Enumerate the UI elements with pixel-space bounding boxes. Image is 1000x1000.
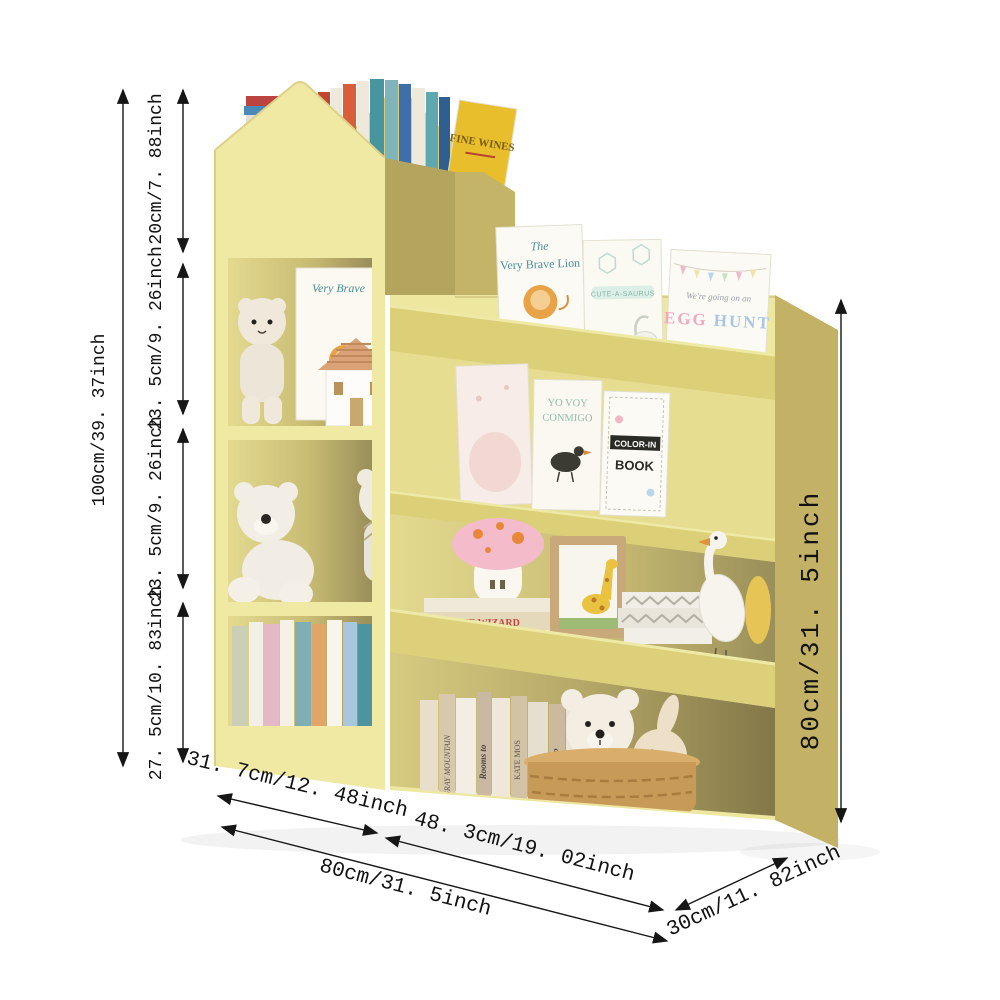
spine-text: GRAY MOUNTAIN [443, 734, 452, 797]
book-spine [312, 624, 326, 726]
giraffe-picture-frame [550, 536, 626, 638]
book-spine [358, 624, 372, 726]
bear-leg [242, 396, 260, 424]
giraffe-spot [605, 578, 609, 582]
book-spine [232, 626, 248, 726]
dim-label-middle-shelf: 23. 5cm/9. 26inch [147, 416, 167, 600]
banner-text: CUTE-A-SAURUS [591, 290, 655, 298]
book-spine [456, 698, 476, 818]
dim-label-total-height: 100cm/39. 37inch [90, 334, 110, 507]
giraffe-spot [600, 606, 605, 611]
bear-body [240, 344, 284, 402]
grass [559, 618, 617, 629]
bookshelf-illustration: FINE WINES Very Brave [0, 0, 1000, 1000]
book-spine [249, 622, 263, 726]
book-title-line2: Very Brave Lion [500, 256, 580, 273]
bear-nose [261, 514, 271, 524]
book-spine-horizontal [624, 628, 712, 644]
book-spine [280, 620, 294, 726]
book-title-line1: The [530, 239, 549, 254]
book-spine [295, 622, 311, 726]
cubby-3-books [232, 620, 372, 726]
cap-dot [473, 529, 483, 539]
house-window [334, 382, 343, 395]
dim-label-total-width: 80cm/31. 5inch [317, 855, 494, 921]
bear-eye [268, 320, 273, 325]
house-door [350, 398, 363, 426]
cap-dot [485, 547, 491, 553]
book-spine [492, 698, 510, 818]
cap-dot [496, 522, 504, 530]
book-spine [327, 620, 342, 726]
goose-head [709, 531, 727, 549]
bear-nose [596, 730, 605, 739]
tower-side-panel [385, 158, 455, 295]
cap-dot [512, 532, 524, 544]
dim-label-right-height: 80cm/31. 5inch [796, 490, 826, 750]
book-title: Very Brave [312, 281, 366, 295]
book-color-in: COLOR-IN BOOK [600, 391, 670, 517]
book-spine-horizontal [424, 598, 552, 612]
product-dimension-image: FINE WINES Very Brave [0, 0, 1000, 1000]
spine-text: KATE MOS [513, 740, 522, 780]
mushroom-window [490, 580, 495, 589]
bear-foot [228, 577, 260, 603]
book-yo-voy-conmigo: YO VOY CONMIGO [532, 379, 602, 510]
book-pink [456, 364, 533, 506]
bear-head [238, 298, 286, 346]
dim-label-bottom-shelf: 27. 5cm/10. 83inch [147, 586, 167, 780]
dim-label-upper-shelf: 23. 5cm/9. 26inch [147, 246, 167, 430]
dim-label-top-section: 20cm/7. 88inch [147, 93, 167, 244]
spine-text: Rooms to [478, 744, 488, 780]
bear-eye [585, 721, 591, 727]
giraffe-spot [592, 598, 597, 603]
mushroom-window [500, 580, 505, 589]
book-title-line2: CONMIGO [542, 413, 593, 425]
book-cover [600, 391, 670, 517]
giraffe-head [606, 559, 618, 569]
bear-eye [609, 721, 615, 727]
bear-leg [264, 396, 282, 424]
book-spine [420, 700, 438, 818]
book-title-line1: COLOR-IN [614, 438, 656, 449]
yellow-plush [745, 576, 771, 644]
goose-eye [714, 536, 718, 540]
bear-eye [252, 320, 257, 325]
giraffe-body [582, 594, 610, 614]
book-spine [343, 622, 357, 726]
book-spine [264, 624, 279, 726]
book-title-line2: BOOK [615, 457, 655, 473]
book-title-line1: YO VOY [547, 398, 588, 410]
